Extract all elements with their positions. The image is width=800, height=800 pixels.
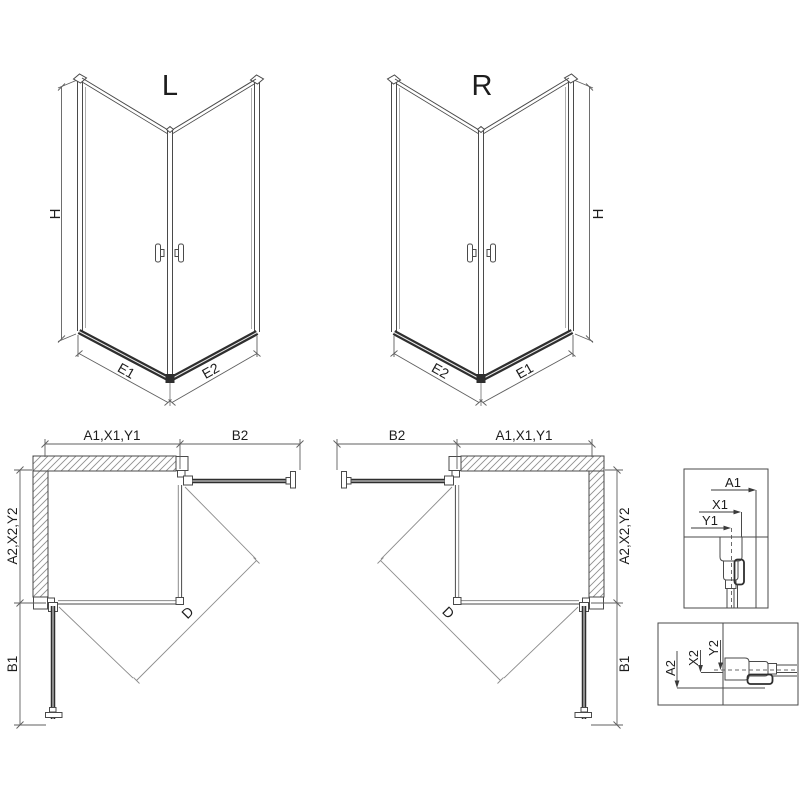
- detail-bottom-x-label: X2: [686, 650, 701, 666]
- plan-right-walls: [449, 456, 604, 609]
- iso-view-right: R H E2 E1: [388, 70, 608, 406]
- plan-right-door-top-label: B2: [389, 428, 406, 443]
- arrow-y2-icon: [718, 663, 723, 671]
- iso-right-title: R: [472, 70, 493, 102]
- iso-view-left: L H E1 E2: [47, 70, 264, 406]
- technical-drawing-page: L H E1 E2 R H E2 E1 A1,X1,Y1 B2 A2,X2,Y2…: [0, 0, 800, 800]
- detail-box-bottom: A2 X2 Y2: [658, 623, 798, 705]
- plan-left-door-side-label: B1: [5, 656, 20, 673]
- detail-bottom-a-label: A2: [663, 660, 678, 676]
- arrow-a2-icon: [675, 681, 680, 689]
- arrow-a1-icon: [749, 488, 757, 493]
- plan-left-diagonal-label: D: [178, 603, 196, 621]
- plan-left-door-top-label: B2: [232, 428, 249, 443]
- shower-enclosure-diagram: L H E1 E2 R H E2 E1 A1,X1,Y1 B2 A2,X2,Y2…: [0, 0, 800, 800]
- plan-view-left: A1,X1,Y1 B2 A2,X2,Y2 B1 D: [5, 428, 304, 729]
- plan-view-right: B2 A1,X1,Y1 A2,X2,Y2 B1 D: [334, 428, 633, 729]
- plan-left-depth-label: A2,X2,Y2: [5, 507, 20, 564]
- detail-bottom-y-label: Y2: [706, 640, 721, 656]
- iso-left-title: L: [162, 70, 178, 102]
- plan-right-door-side-label: B1: [617, 656, 632, 673]
- dim-h-right: H: [590, 209, 607, 220]
- plan-left-walls: [33, 456, 188, 609]
- plan-right-depth-label: A2,X2,Y2: [617, 507, 632, 564]
- detail-top-x-label: X1: [712, 497, 728, 512]
- arrow-x1-icon: [734, 510, 742, 515]
- detail-top-y-label: Y1: [702, 513, 718, 528]
- detail-top-a-label: A1: [725, 475, 741, 490]
- plan-right-width-label: A1,X1,Y1: [495, 428, 552, 443]
- plan-right-diagonal-label: D: [439, 603, 457, 621]
- detail-box-top: A1 X1 Y1: [684, 469, 768, 608]
- arrow-y1-icon: [724, 526, 732, 531]
- dim-h-left: H: [47, 209, 64, 220]
- plan-left-width-label: A1,X1,Y1: [83, 428, 140, 443]
